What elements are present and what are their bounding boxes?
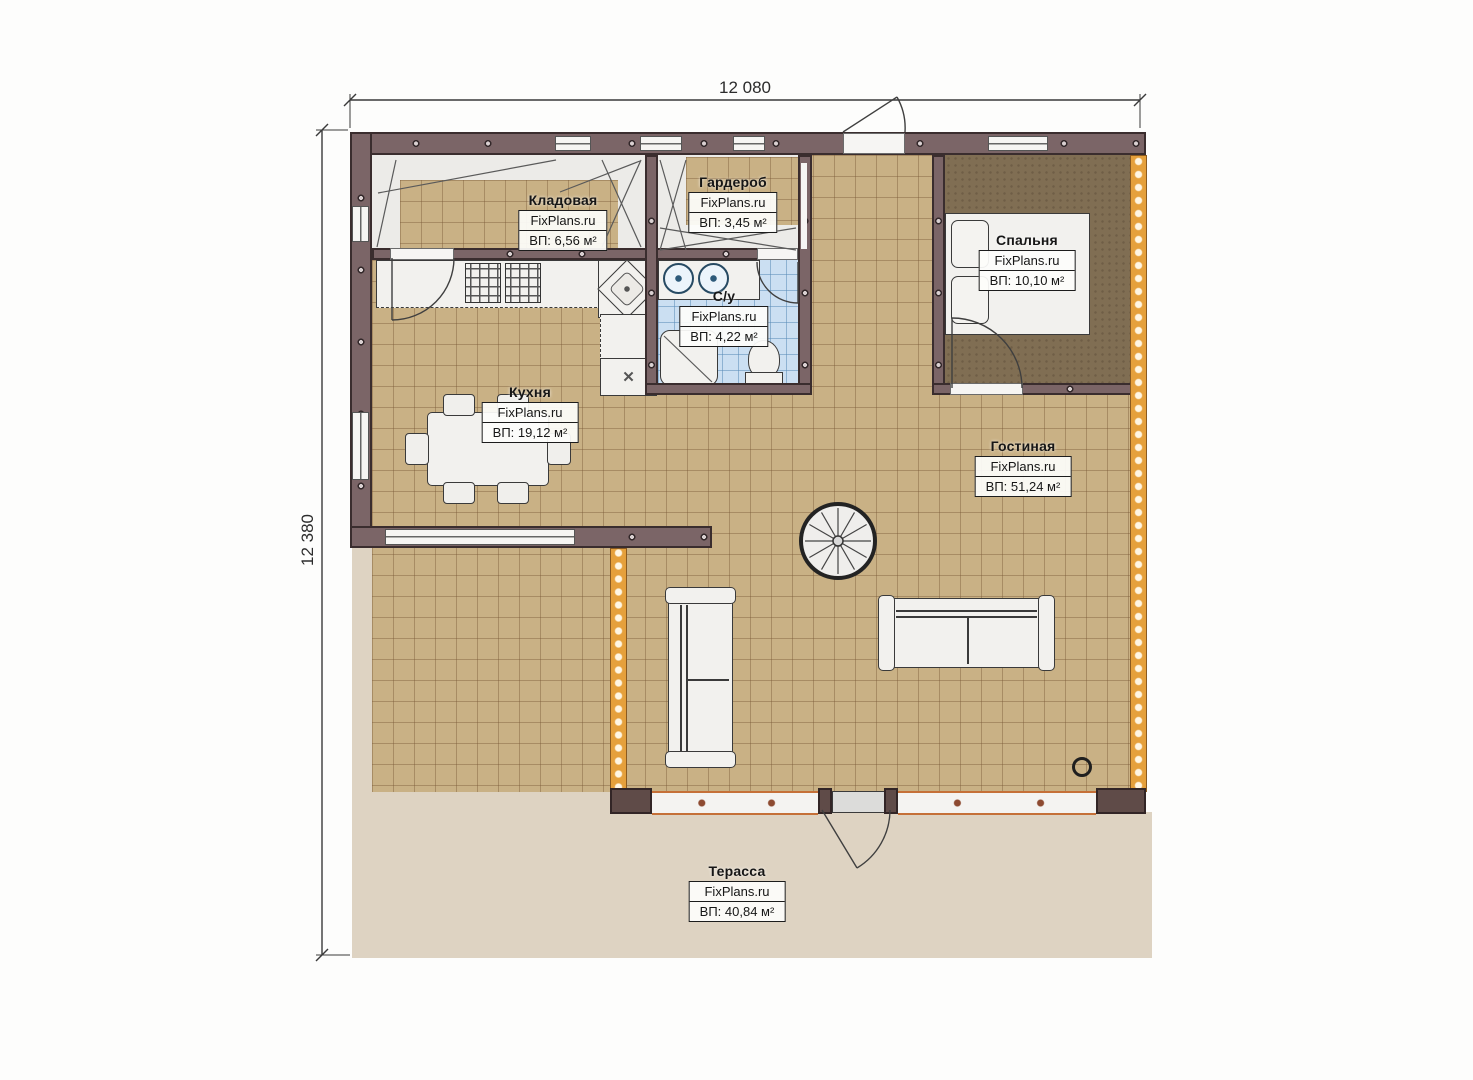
window-kitchen-bottom	[385, 529, 575, 545]
sofa-armrest	[878, 595, 895, 671]
room-name: Спальня	[979, 232, 1076, 248]
room-area: ВП: 10,10 м²	[980, 271, 1075, 290]
panorama-window-right	[898, 791, 1096, 815]
room-info-box: FixPlans.ru ВП: 4,22 м²	[679, 306, 768, 347]
sofa-seat-divider	[686, 679, 729, 681]
room-info-box: FixPlans.ru ВП: 19,12 м²	[482, 402, 579, 443]
room-area: ВП: 3,45 м²	[689, 213, 776, 232]
dining-chair	[443, 482, 475, 504]
floor-plan: ✕	[0, 0, 1473, 1080]
room-info-box: FixPlans.ru ВП: 40,84 м²	[689, 881, 786, 922]
window-bedroom-top	[988, 136, 1048, 151]
room-label-kladovaya: Кладовая FixPlans.ru ВП: 6,56 м²	[518, 192, 607, 251]
sofa-horizontal	[883, 598, 1050, 668]
room-name: С/у	[679, 288, 768, 304]
room-label-kuhnya: Кухня FixPlans.ru ВП: 19,12 м²	[482, 384, 579, 443]
brand-watermark: FixPlans.ru	[483, 403, 578, 423]
bottom-wall-post	[610, 788, 652, 814]
room-area: ВП: 4,22 м²	[680, 327, 767, 346]
dining-chair	[405, 433, 429, 465]
brand-watermark: FixPlans.ru	[980, 251, 1075, 271]
room-area: ВП: 19,12 м²	[483, 423, 578, 442]
window-left	[352, 206, 369, 242]
dining-chair	[497, 482, 529, 504]
brand-watermark: FixPlans.ru	[976, 457, 1071, 477]
room-info-box: FixPlans.ru ВП: 10,10 м²	[979, 250, 1076, 291]
room-label-su: С/у FixPlans.ru ВП: 4,22 м²	[679, 288, 768, 347]
entrance-door-opening	[843, 133, 905, 154]
sofa-armrest	[665, 587, 736, 604]
stove-burner-right	[505, 263, 541, 303]
room-name: Терасса	[689, 863, 786, 879]
room-name: Гостиная	[975, 438, 1072, 454]
dining-chair	[443, 394, 475, 416]
room-label-gostinaya: Гостиная FixPlans.ru ВП: 51,24 м²	[975, 438, 1072, 497]
sofa-armrest	[1038, 595, 1055, 671]
window-top	[555, 136, 591, 151]
bathroom-bottom-wall	[645, 383, 812, 395]
window-top	[733, 136, 765, 151]
panorama-window-left	[652, 791, 818, 815]
room-label-garderob: Гардероб FixPlans.ru ВП: 3,45 м²	[688, 174, 777, 233]
room-label-terassa: Терасса FixPlans.ru ВП: 40,84 м²	[689, 863, 786, 922]
brand-watermark: FixPlans.ru	[680, 307, 767, 327]
room-name: Гардероб	[688, 174, 777, 190]
bedroom-left-wall	[932, 155, 945, 395]
exterior-wall-left	[350, 132, 372, 548]
sofa-back-line	[896, 610, 1037, 612]
window-left	[352, 412, 369, 480]
floor-ring-symbol	[1072, 757, 1092, 777]
stove-burner-left	[465, 263, 501, 303]
dimension-line-top	[344, 94, 1146, 128]
room-name: Кладовая	[518, 192, 607, 208]
dimension-width-label: 12 080	[719, 78, 771, 98]
interior-wall-storage-wardrobe	[645, 155, 658, 395]
sofa-armrest	[665, 751, 736, 768]
room-info-box: FixPlans.ru ВП: 3,45 м²	[688, 192, 777, 233]
terrace-door-hinge-post	[884, 788, 898, 814]
bottom-wall-post	[1096, 788, 1146, 814]
brand-watermark: FixPlans.ru	[690, 882, 785, 902]
sofa-vertical	[668, 592, 733, 765]
dimension-height-label: 12 380	[298, 514, 318, 566]
sofa-back-line	[680, 605, 682, 752]
dimension-line-left	[316, 124, 350, 961]
insulation-strip-right	[1130, 155, 1147, 792]
room-label-spalnya: Спальня FixPlans.ru ВП: 10,10 м²	[979, 232, 1076, 291]
kitchen-door-opening	[390, 248, 454, 260]
brand-watermark: FixPlans.ru	[519, 211, 606, 231]
window-top	[640, 136, 682, 151]
sofa-seat-divider	[967, 616, 969, 664]
insulation-strip-living-left	[610, 548, 627, 792]
brand-watermark: FixPlans.ru	[689, 193, 776, 213]
room-name: Кухня	[482, 384, 579, 400]
bathroom-door-opening	[757, 248, 798, 260]
terrace-door-hinge-post	[818, 788, 832, 814]
terrace-door-leaf-closed	[832, 791, 886, 813]
bedroom-door-opening	[950, 383, 1023, 395]
room-info-box: FixPlans.ru ВП: 51,24 м²	[975, 456, 1072, 497]
room-info-box: FixPlans.ru ВП: 6,56 м²	[518, 210, 607, 251]
room-area: ВП: 51,24 м²	[976, 477, 1071, 496]
room-area: ВП: 40,84 м²	[690, 902, 785, 921]
room-area: ВП: 6,56 м²	[519, 231, 606, 250]
wardrobe-pocket-door	[801, 163, 807, 249]
